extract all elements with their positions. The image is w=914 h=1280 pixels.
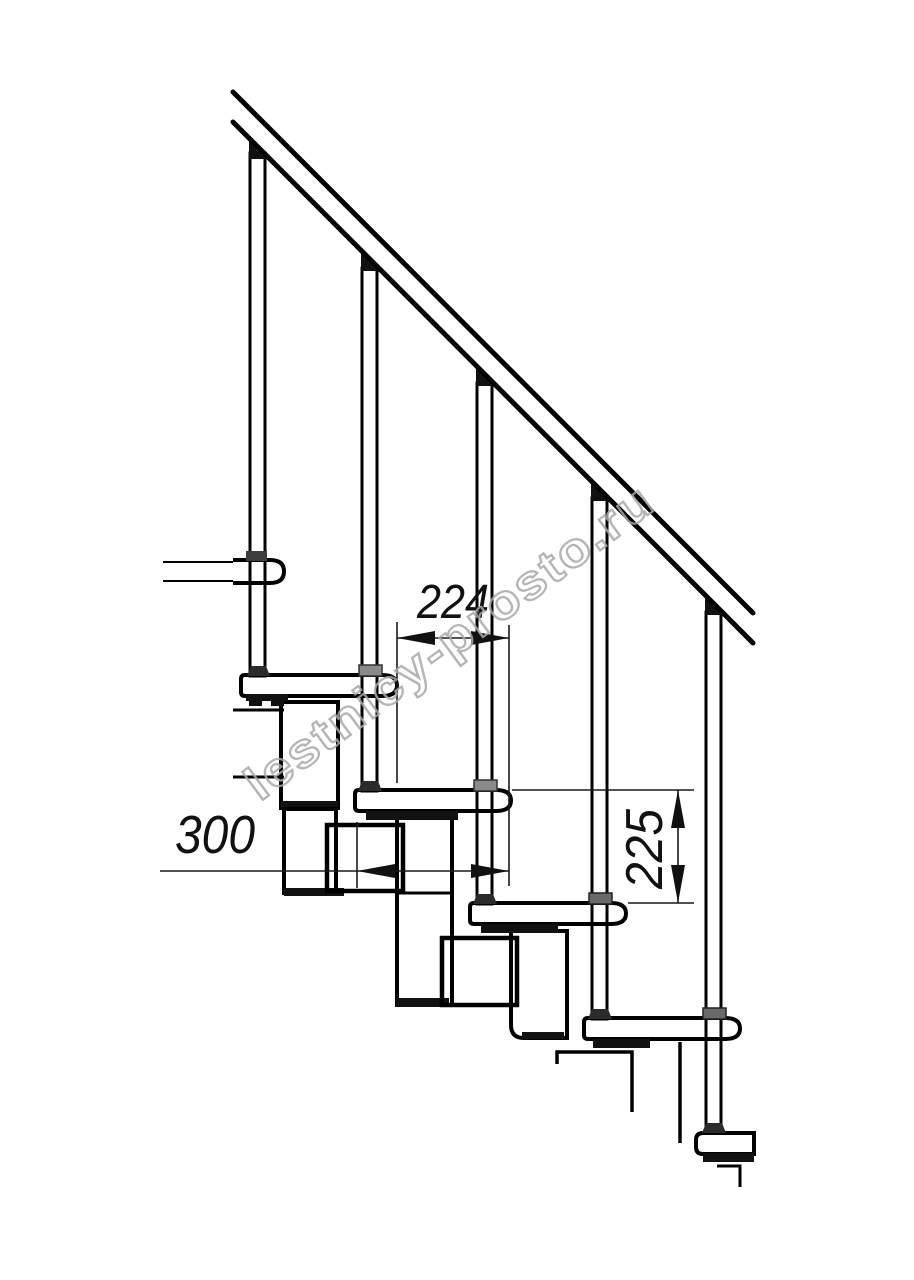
tread-5-break-line — [717, 1166, 740, 1187]
spine-module-box-3-partial — [557, 1052, 632, 1112]
baluster-3-pass-collar — [474, 780, 497, 791]
tread-1-bracket-foot-b — [271, 700, 284, 706]
tread-1-bracket — [246, 694, 288, 701]
dim-300-label: 300 — [175, 805, 255, 865]
watermark-text: lestnicy-prosto.ru — [235, 474, 664, 811]
baluster-4-base-collar — [588, 1009, 612, 1019]
tread-5-partial — [696, 1133, 754, 1154]
tread-2 — [355, 790, 511, 811]
baluster-1 — [250, 153, 265, 676]
baluster-4 — [592, 498, 607, 1019]
baluster-2-base-collar — [358, 781, 382, 791]
baluster-5-pass-collar — [703, 1008, 726, 1019]
spine-module-box-1 — [327, 825, 403, 891]
tread-4 — [584, 1018, 740, 1039]
spine-column-3 — [511, 931, 567, 1038]
tread-3-bracket — [481, 924, 558, 933]
baluster-5 — [706, 612, 721, 1133]
baluster-4-pass-collar — [589, 893, 612, 904]
landing-nose — [233, 560, 284, 583]
tread-4-bracket — [593, 1039, 650, 1048]
dim-225-label: 225 — [616, 808, 674, 890]
dim-300-arrow-right — [471, 864, 509, 878]
dim-300-arrow-left — [357, 864, 395, 878]
tread-1-bracket-foot-a — [249, 700, 262, 706]
baluster-1-base-collar — [247, 666, 270, 676]
dimension-225: 225 — [512, 790, 694, 903]
tread-2-bracket — [366, 811, 458, 820]
baluster-5-base-collar — [702, 1123, 726, 1133]
baluster-3-base-collar — [473, 894, 497, 904]
tread-5-bracket — [703, 1153, 754, 1162]
baluster-1-landing-collar — [246, 551, 267, 561]
spine-column-3-foot — [522, 1032, 564, 1039]
staircase-side-view: 224 300 225 lestnicy-prosto.ru — [0, 0, 914, 1280]
tread-3 — [470, 903, 626, 924]
staircase-drawing-canvas: 224 300 225 lestnicy-prosto.ru — [0, 0, 914, 1280]
